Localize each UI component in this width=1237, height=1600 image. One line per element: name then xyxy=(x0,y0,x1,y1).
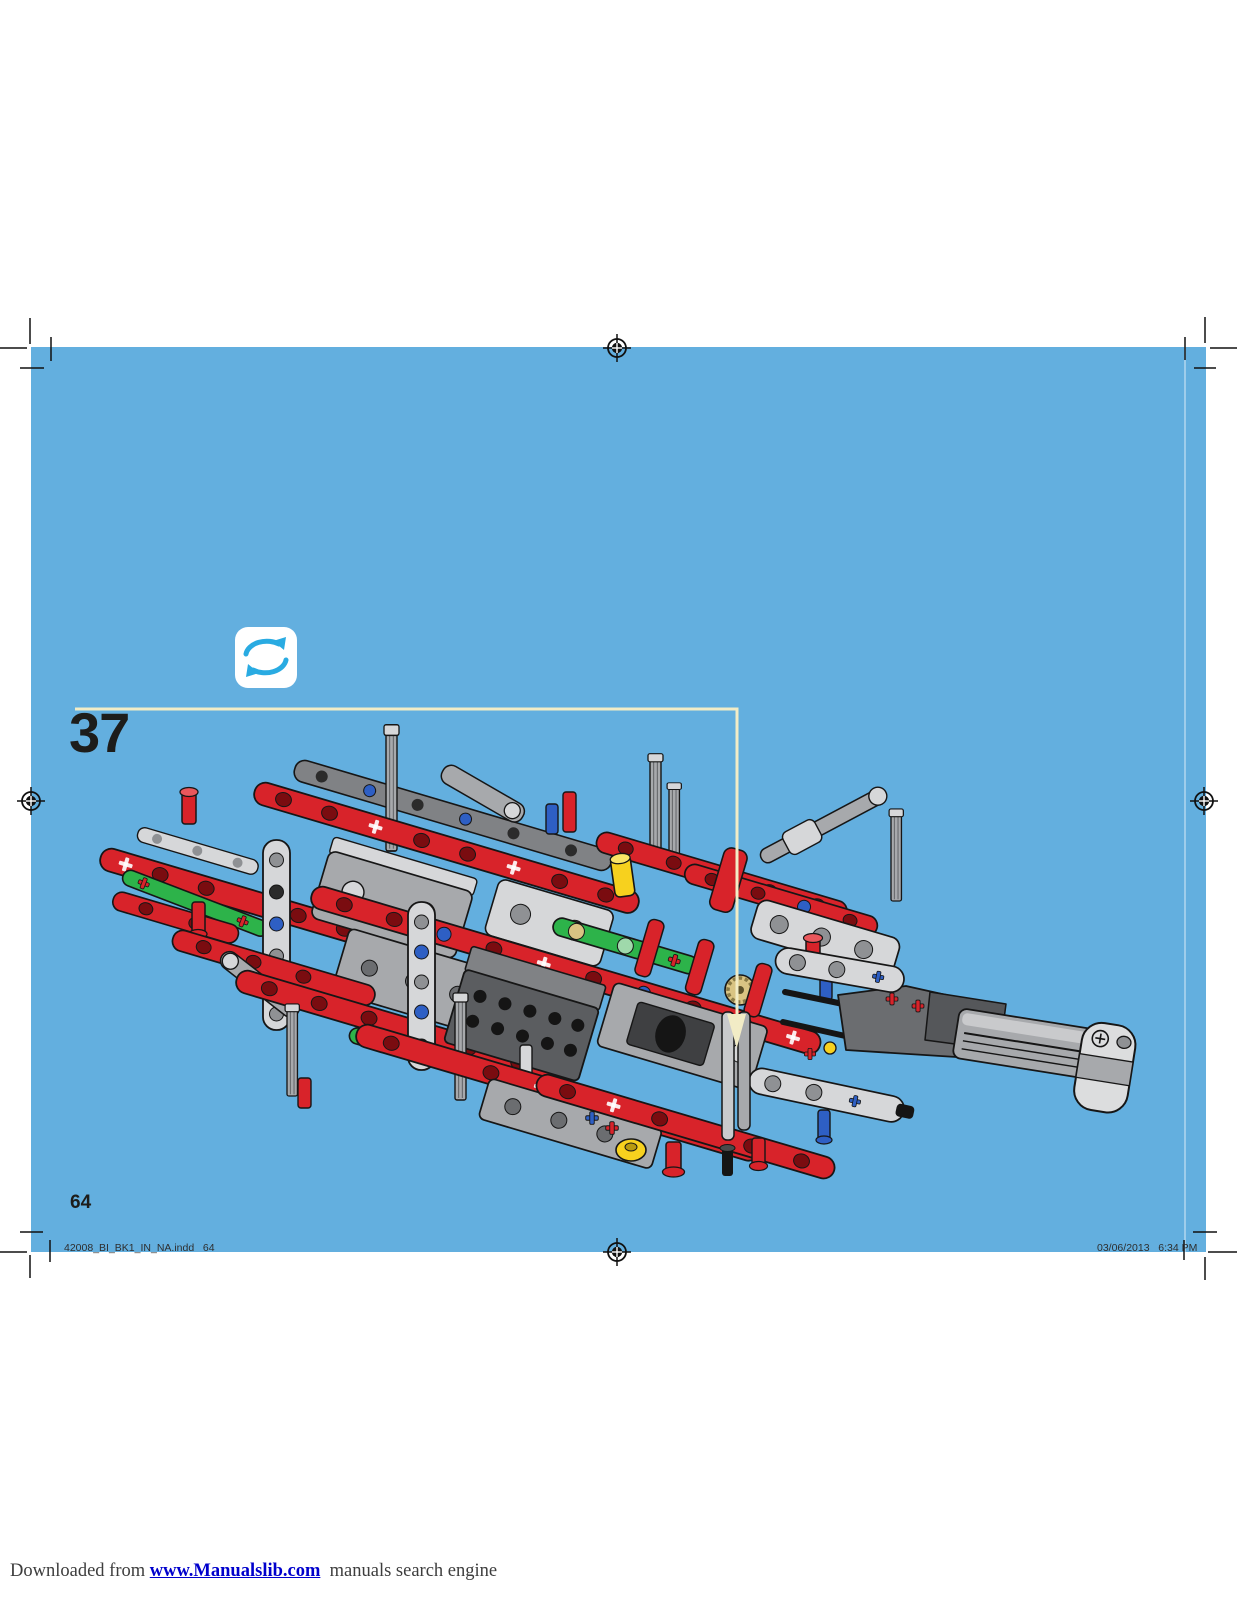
yellow-bush-small xyxy=(824,1042,836,1054)
yellow-half-bush xyxy=(616,1139,646,1161)
red-flanged-pin xyxy=(663,1142,685,1177)
watermark-suffix: manuals search engine xyxy=(320,1561,497,1581)
print-timestamp: 03/06/2013 6:34 PM xyxy=(1097,1242,1197,1254)
scanned-manual-page: { "page": { "background_color": "#63AFDF… xyxy=(0,0,1237,1600)
rotate-arrows-icon xyxy=(235,627,297,688)
red-pin-bottomleft xyxy=(298,1078,311,1108)
watermark-prefix: Downloaded from xyxy=(10,1561,150,1581)
scan-canvas xyxy=(0,0,1237,1600)
lego-model-illustration xyxy=(97,725,1138,1181)
manualslib-link[interactable]: www.Manualslib.com xyxy=(150,1561,321,1581)
print-file-name: 42008_BI_BK1_IN_NA.indd 64 xyxy=(64,1242,215,1254)
blue-pin-top xyxy=(546,804,558,834)
rear-arm-lower xyxy=(747,1066,917,1126)
red-pin-top xyxy=(563,792,576,832)
step-number: 37 xyxy=(69,700,129,765)
diagonal-axle-assembly xyxy=(756,781,892,869)
manualslib-watermark: Downloaded from www.Manualslib.com manua… xyxy=(10,1561,497,1582)
red-pin-bottom2 xyxy=(750,1138,768,1171)
actuator-cylinder xyxy=(952,1008,1096,1079)
page-number: 64 xyxy=(70,1192,91,1214)
black-pin-bottom xyxy=(720,1145,735,1177)
rotate-model-icon xyxy=(235,627,297,688)
